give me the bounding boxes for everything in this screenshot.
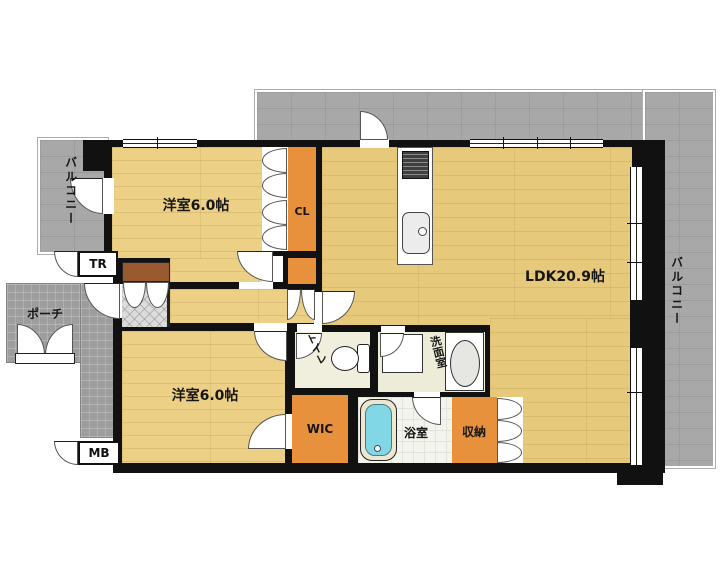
trunk-room-label: TR — [89, 257, 106, 271]
kitchen-faucet-icon — [418, 227, 427, 236]
wic-label: WIC — [292, 423, 348, 436]
porch-label: ポーチ — [16, 308, 74, 321]
window-tick — [627, 392, 646, 393]
bathtub-drain-icon — [374, 445, 381, 452]
door-arc-tr — [54, 251, 78, 277]
kitchen-stove-icon — [402, 151, 429, 179]
floorplan-canvas: TR MB 洋室6.0帖 CL LDK20.9帖 洋室6.0帖 トイレ 洗面室 … — [0, 0, 720, 576]
door-gap — [239, 282, 273, 289]
ldk-label: LDK20.9帖 — [495, 270, 635, 285]
balcony-left-label: バルコニー — [64, 156, 77, 226]
ldk-floor — [322, 147, 632, 325]
porch-door-threshold — [15, 353, 75, 364]
hall-closet-floor — [288, 258, 316, 284]
door-arc-mb — [54, 441, 78, 465]
meter-box: MB — [78, 441, 120, 465]
bathroom-label: 浴室 — [386, 427, 446, 440]
storage-label: 収納 — [450, 426, 498, 439]
window-tick — [503, 137, 504, 149]
balcony-right-label: バルコニー — [670, 256, 683, 326]
door-gap — [285, 414, 292, 449]
bedroom-top-label: 洋室6.0帖 — [126, 199, 266, 214]
window-tick — [627, 262, 646, 263]
door-gap — [254, 323, 287, 331]
door-gap — [360, 139, 389, 148]
bedroom-bottom-label: 洋室6.0帖 — [135, 389, 275, 404]
door-gap — [381, 326, 405, 333]
window — [123, 139, 197, 148]
closet-cl-floor — [288, 147, 316, 251]
door-gap — [297, 324, 322, 332]
door-gap — [103, 178, 114, 214]
window-tick — [627, 223, 646, 224]
trunk-room-box: TR — [78, 251, 118, 277]
closet-cl-label: CL — [287, 206, 317, 218]
meter-box-label: MB — [88, 446, 109, 460]
window-wall-segment — [630, 300, 643, 348]
door-gap — [314, 292, 322, 324]
window-tick — [537, 137, 538, 149]
window-tick — [157, 137, 158, 149]
shoe-cabinet — [122, 262, 170, 282]
corner-pillar-topleft — [83, 140, 113, 171]
window-tick — [570, 137, 571, 149]
wash-basin-icon — [450, 340, 480, 387]
toilet-bowl-icon — [331, 346, 359, 371]
